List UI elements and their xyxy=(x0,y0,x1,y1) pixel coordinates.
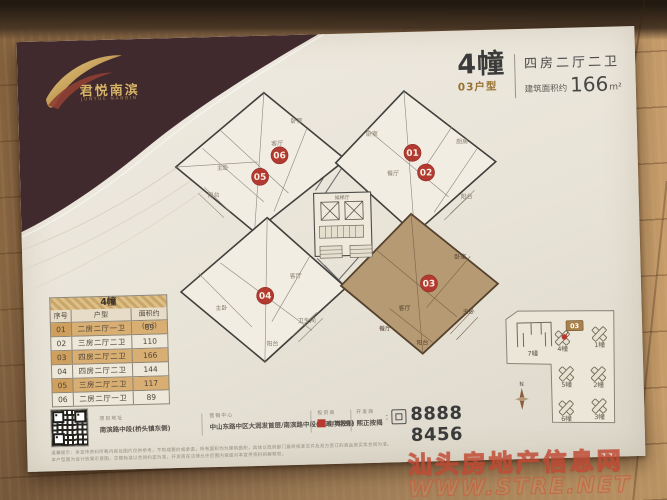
svg-text:05: 05 xyxy=(254,173,267,183)
unit-marker-03: 03 xyxy=(420,275,437,292)
room-label: 阳台 xyxy=(266,339,278,347)
svg-text:2幢: 2幢 xyxy=(593,380,604,389)
room-label: 客厅 xyxy=(398,304,410,312)
elevator-core: 候梯厅 xyxy=(314,192,373,258)
unit-marker-01: 01 xyxy=(404,144,421,161)
stairs-icon xyxy=(319,225,363,238)
building-4: 4幢 xyxy=(555,330,571,353)
room-label: 客厅 xyxy=(290,272,302,280)
compass-icon: N xyxy=(515,381,530,410)
qr-finder-icon xyxy=(52,411,64,423)
svg-text:5幢: 5幢 xyxy=(561,380,572,389)
hotline-logo-icon xyxy=(391,409,406,424)
building-1: 1幢 xyxy=(592,326,608,349)
room-label: 卫生间 xyxy=(298,316,316,324)
building-3: 3幢 xyxy=(592,398,608,421)
svg-text:6幢: 6幢 xyxy=(561,414,572,423)
room-label: 卧室 xyxy=(366,130,378,138)
investor: 投资商 中奥控股 xyxy=(317,408,353,428)
core-label: 候梯厅 xyxy=(335,194,350,201)
investor-logo-icon xyxy=(317,419,325,427)
room-label: 主卧 xyxy=(217,164,229,172)
room-label: 厨房 xyxy=(456,137,468,145)
svg-text:03: 03 xyxy=(570,322,579,330)
svg-text:04: 04 xyxy=(259,292,272,302)
building-2: 2幢 xyxy=(591,366,607,389)
room-label: 卧室 xyxy=(291,117,303,125)
watermark-line2: WWW.STRE.NET xyxy=(408,473,631,500)
qr-finder-icon xyxy=(53,433,65,445)
room-label: 餐厅 xyxy=(387,169,399,177)
room-label: 卧室 xyxy=(454,252,466,260)
brochure-page: 君悦南滨 JUNYUE NANBIN 4幢 03户型 四房二厅二卫 建筑面积约 … xyxy=(16,26,645,472)
qr-finder-icon xyxy=(74,410,86,422)
unit-marker-05: 05 xyxy=(251,168,268,185)
unit-marker-06: 06 xyxy=(271,147,288,164)
qr-code xyxy=(50,408,89,447)
room-label: 阳台 xyxy=(416,338,428,346)
floorplan-drawing: 候梯厅 卧室 客厅 主卧 阳台 卧室 餐厅 厨房 阳台 客厅 主卧 xyxy=(166,75,514,376)
area-unit: m² xyxy=(609,82,622,92)
svg-text:3幢: 3幢 xyxy=(594,412,605,421)
room-label: 客厅 xyxy=(271,139,283,147)
site-plan-map: 7幢 4幢 1幢 5幢 2幢 6幢 xyxy=(502,302,642,434)
room-label: 阳台 xyxy=(461,192,473,200)
area-value: 166 xyxy=(570,76,609,94)
divider xyxy=(201,413,203,435)
building-6: 6幢 xyxy=(559,400,575,423)
room-label: 主卧 xyxy=(463,307,475,315)
svg-text:06: 06 xyxy=(273,151,286,161)
building-5: 5幢 xyxy=(559,366,575,389)
svg-text:1幢: 1幢 xyxy=(594,340,605,349)
room-label: 阳台 xyxy=(207,191,219,199)
unit-area: 建筑面积约 166 m² xyxy=(524,75,621,95)
photo-scene: 君悦南滨 JUNYUE NANBIN 4幢 03户型 四房二厅二卫 建筑面积约 … xyxy=(0,0,667,500)
building-number: 4幢 xyxy=(457,51,505,78)
separator: : xyxy=(385,413,388,423)
unit-table: 4幢 序号 户型 面积约(m²) 01 二房二厅一卫 89 02 三房二厅二卫 … xyxy=(49,294,170,407)
svg-text:4幢: 4幢 xyxy=(557,344,568,353)
svg-text:N: N xyxy=(519,381,524,388)
svg-text:01: 01 xyxy=(406,149,419,159)
project-address: 项目地址 南滨路中段(桥头镇东侧) xyxy=(99,413,170,434)
room-label: 主卧 xyxy=(215,304,227,312)
room-label: 餐厅 xyxy=(379,324,391,332)
svg-text:03: 03 xyxy=(423,279,436,289)
area-label: 建筑面积约 xyxy=(525,82,568,95)
developer: 开发商 熙正按揭 xyxy=(356,408,382,428)
service-shaft xyxy=(320,246,342,259)
unit-marker-04: 04 xyxy=(256,287,273,304)
title-divider xyxy=(514,54,516,98)
service-shaft xyxy=(350,245,372,258)
unit-layout: 四房二厅二卫 xyxy=(524,50,622,72)
unit-marker-02: 02 xyxy=(417,164,434,181)
svg-text:02: 02 xyxy=(420,168,433,178)
svg-text:7幢: 7幢 xyxy=(527,349,538,358)
